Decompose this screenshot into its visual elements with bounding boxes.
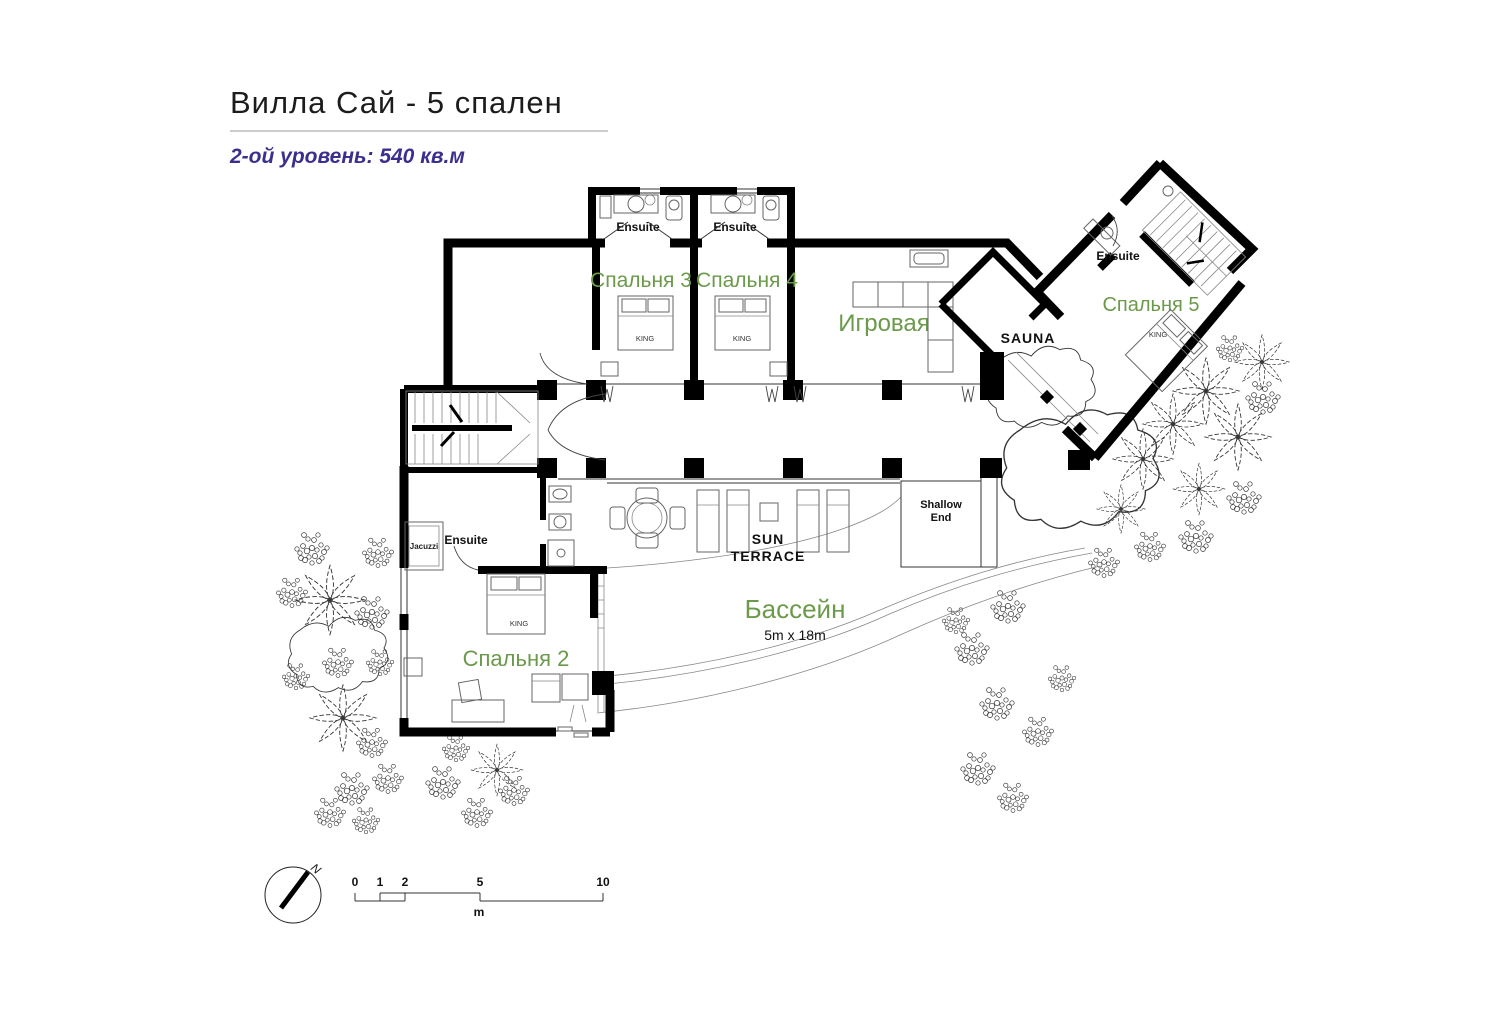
floor-plan-drawing: Вилла Сай - 5 спален 2-ой уровень: 540 к… (0, 0, 1500, 1025)
game-room: Игровая (838, 250, 953, 372)
pool-terrace: Shallow End SUN TERRACE Бассейн 5m x 18m (558, 470, 1100, 713)
pool-label: Бассейн (745, 594, 846, 624)
compass: N (265, 861, 324, 923)
north-label: N (308, 861, 324, 878)
scale-tick-0: 0 (352, 875, 359, 889)
sun-terrace-label-1: SUN (752, 531, 785, 547)
sun-terrace-label-2: TERRACE (731, 548, 806, 564)
sauna-label: SAUNA (1001, 330, 1056, 346)
bedroom2-label: Спальня 2 (463, 646, 570, 671)
bedroom3: Ensuite Спальня 3 KING (590, 195, 692, 376)
game-room-console (910, 250, 948, 267)
side-table (760, 503, 778, 521)
scale-tick-10: 10 (596, 875, 610, 889)
level-subtitle: 2-ой уровень: 540 кв.м (229, 145, 465, 168)
header: Вилла Сай - 5 спален 2-ой уровень: 540 к… (229, 85, 608, 168)
foyer-double-door (548, 394, 605, 460)
pool-size-label: 5m x 18m (764, 627, 825, 643)
ensuite3-fixtures (600, 195, 682, 220)
page-title: Вилла Сай - 5 спален (230, 85, 563, 120)
floor-plan-page: Вилла Сай - 5 спален 2-ой уровень: 540 к… (0, 0, 1500, 1025)
scale-tick-5: 5 (477, 875, 484, 889)
scale-tick-1: 1 (377, 875, 384, 889)
stair-hall (406, 353, 605, 464)
pool-bottom-edge-3 (597, 566, 1100, 713)
ensuite4-label: Ensuite (713, 220, 757, 234)
sauna: SAUNA (941, 252, 1055, 356)
ensuite3-label: Ensuite (616, 220, 660, 234)
shallow-end-label-2: End (931, 512, 952, 524)
bedroom3-king-label: KING (636, 334, 655, 343)
bedroom4-label: Спальня 4 (696, 269, 798, 292)
bedroom2-ensuite-fixtures (548, 486, 574, 566)
ensuite5-label: Ensuite (1096, 249, 1140, 263)
shallow-end-area (901, 481, 981, 567)
bedroom2-block: Ensuite Jacuzzi KING Спальня 2 (398, 466, 610, 738)
terrace-edge (558, 479, 900, 483)
bedroom4-king-label: KING (733, 334, 752, 343)
shallow-end-label-1: Shallow (920, 499, 962, 511)
bedroom3-label: Спальня 3 (590, 269, 692, 292)
bedroom2-king-label: KING (510, 619, 529, 628)
bedroom4: Ensuite Спальня 4 KING (696, 195, 798, 376)
scale-tick-2: 2 (402, 875, 409, 889)
bedroom5-king-label: KING (1149, 330, 1168, 339)
wing-stairs (1142, 192, 1245, 295)
bedroom4-bench (770, 362, 787, 376)
game-room-label: Игровая (838, 310, 930, 337)
terrace-dining-set (610, 488, 685, 548)
bedroom3-bench (601, 362, 618, 376)
jacuzzi-label: Jacuzzi (410, 542, 438, 551)
scale-unit-label: m (474, 905, 485, 919)
stair-rail (412, 425, 512, 431)
walkway-column (1040, 390, 1054, 404)
jacuzzi: Jacuzzi (405, 522, 443, 570)
ensuite2-label: Ensuite (444, 533, 488, 547)
corridor-door-swing (540, 353, 587, 384)
ensuite4-fixtures (711, 195, 779, 220)
bedroom2-ensuite-door-swing (454, 546, 478, 570)
scale-bar: 0 1 2 5 10 m (352, 875, 610, 919)
bedroom5-label: Спальня 5 (1102, 294, 1199, 316)
